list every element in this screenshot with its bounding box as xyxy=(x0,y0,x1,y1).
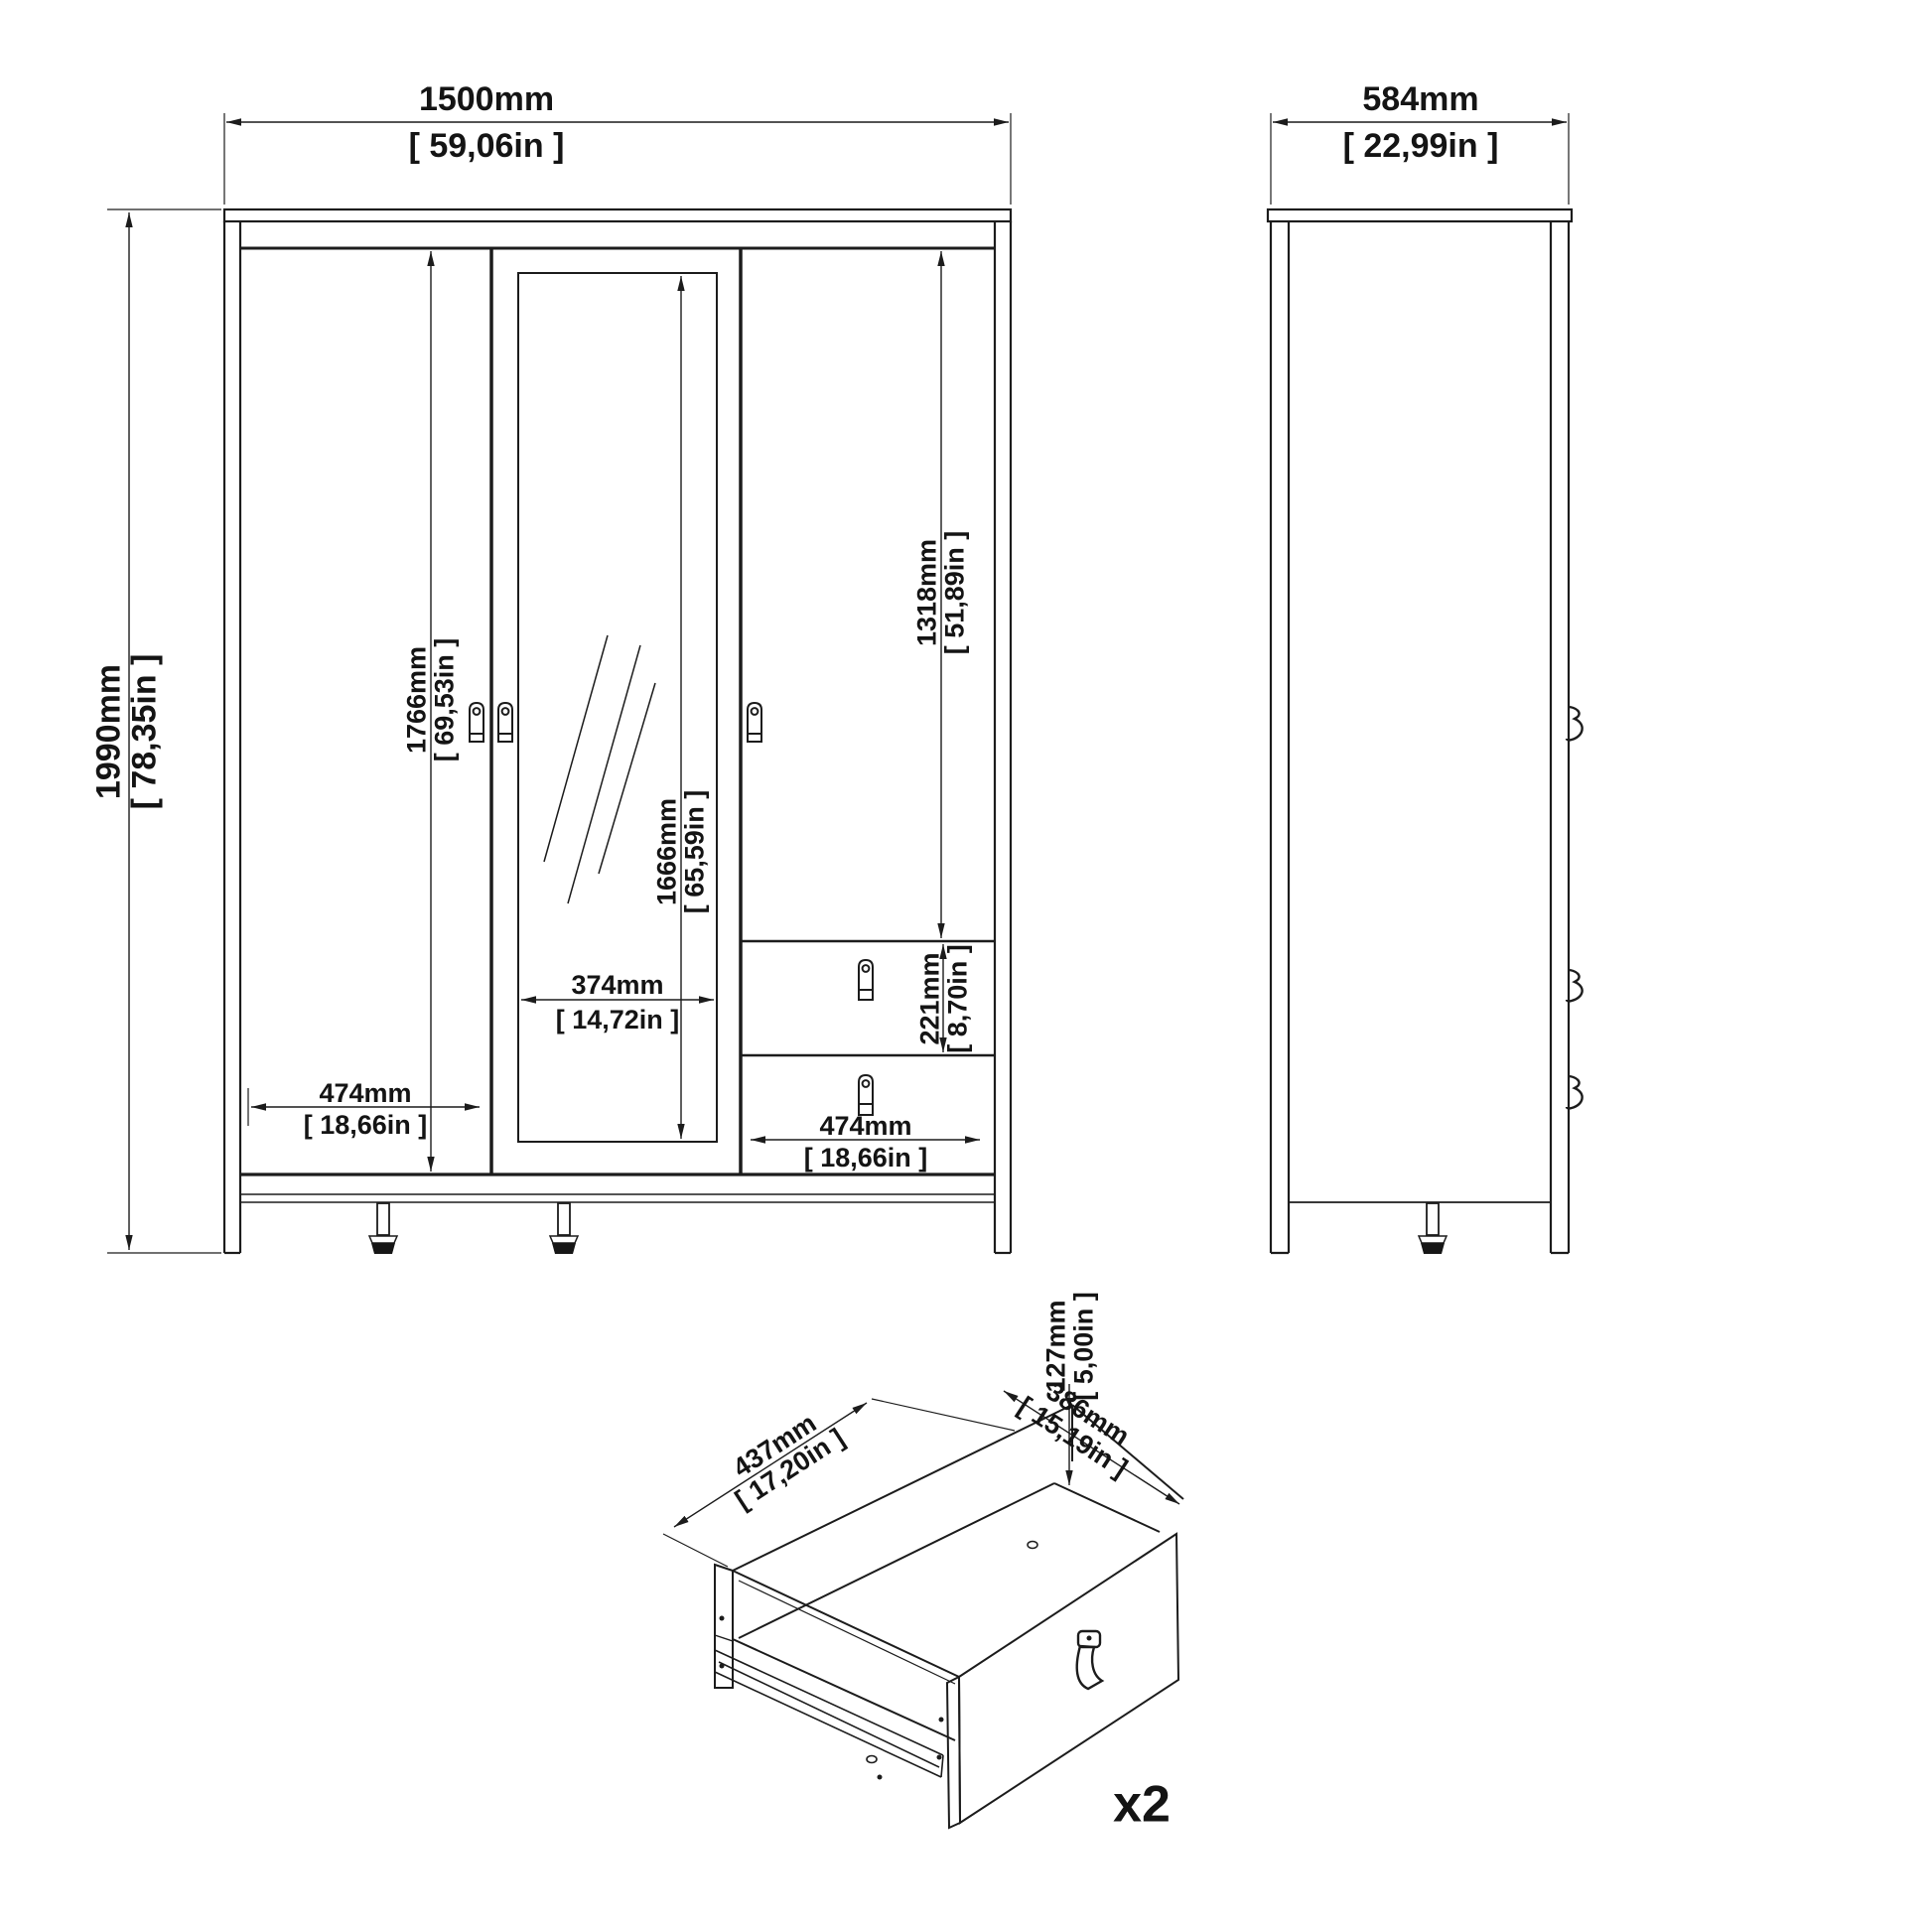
front-door-divisions xyxy=(491,248,741,1174)
front-foot-icon xyxy=(550,1203,578,1254)
drawer-quantity-label: x2 xyxy=(1113,1778,1171,1833)
left-door-width-inch-label: [ 18,66in ] xyxy=(304,1111,428,1139)
left-door-width-mm-label: 474mm xyxy=(319,1079,411,1107)
top-drawer-handle-icon xyxy=(859,960,873,1000)
door-height-mm-label: 1766mm xyxy=(403,638,431,762)
left-door-handle-icon xyxy=(470,703,483,742)
front-width-inch-label: [ 59,06in ] xyxy=(409,129,565,165)
right-section-width-inch-label: [ 18,66in ] xyxy=(804,1144,928,1172)
front-height-inch-label: [ 78,35in ] xyxy=(127,654,163,810)
side-view xyxy=(1268,209,1583,1254)
mirror-height-label: 1666mm [ 65,59in ] xyxy=(653,790,710,914)
right-door-handle-icon xyxy=(748,703,761,742)
side-depth-mm-label: 584mm xyxy=(1362,82,1478,118)
side-depth-inch-label: [ 22,99in ] xyxy=(1343,129,1499,165)
mirror-height-mm-label: 1666mm xyxy=(653,790,681,914)
right-door-height-inch-label: [ 51,89in ] xyxy=(941,531,969,655)
mirror-width-mm-label: 374mm xyxy=(571,971,663,999)
drawer-leather-handle-icon xyxy=(1077,1631,1102,1689)
right-door-height-label: 1318mm [ 51,89in ] xyxy=(913,531,970,655)
dimension-lines xyxy=(107,113,1569,1567)
door-height-inch-label: [ 69,53in ] xyxy=(431,638,459,762)
extension-lines xyxy=(107,113,1569,1567)
drawer-front-height-mm-label: 221mm xyxy=(916,944,944,1053)
front-foot-icon xyxy=(369,1203,397,1254)
front-height-label: 1990mm [ 78,35in ] xyxy=(91,654,162,810)
drawer-front-height-inch-label: [ 8,70in ] xyxy=(944,944,972,1053)
door-height-label: 1766mm [ 69,53in ] xyxy=(403,638,460,762)
front-top-panel xyxy=(224,209,1011,221)
bottom-drawer-handle-icon xyxy=(859,1075,873,1115)
front-height-mm-label: 1990mm xyxy=(91,654,127,810)
drawer-rail-icon xyxy=(715,1650,943,1780)
right-section-width-mm-label: 474mm xyxy=(819,1112,911,1140)
front-width-mm-label: 1500mm xyxy=(419,82,554,118)
side-foot-icon xyxy=(1419,1203,1447,1254)
side-top-panel xyxy=(1268,209,1572,221)
mirror-width-inch-label: [ 14,72in ] xyxy=(556,1006,680,1034)
technical-drawing-page: 1500mm [ 59,06in ] 584mm [ 22,99in ] 199… xyxy=(0,0,1932,1932)
drawer-inner-height-inch-label: [ 5,00in ] xyxy=(1070,1292,1098,1401)
mirror-reflection-icon xyxy=(544,635,655,903)
mirror-door-handle-icon xyxy=(498,703,512,742)
mirror-height-inch-label: [ 65,59in ] xyxy=(681,790,709,914)
side-panels xyxy=(1271,221,1569,1253)
right-door-height-mm-label: 1318mm xyxy=(913,531,941,655)
drawer-front-height-label: 221mm [ 8,70in ] xyxy=(916,944,973,1053)
